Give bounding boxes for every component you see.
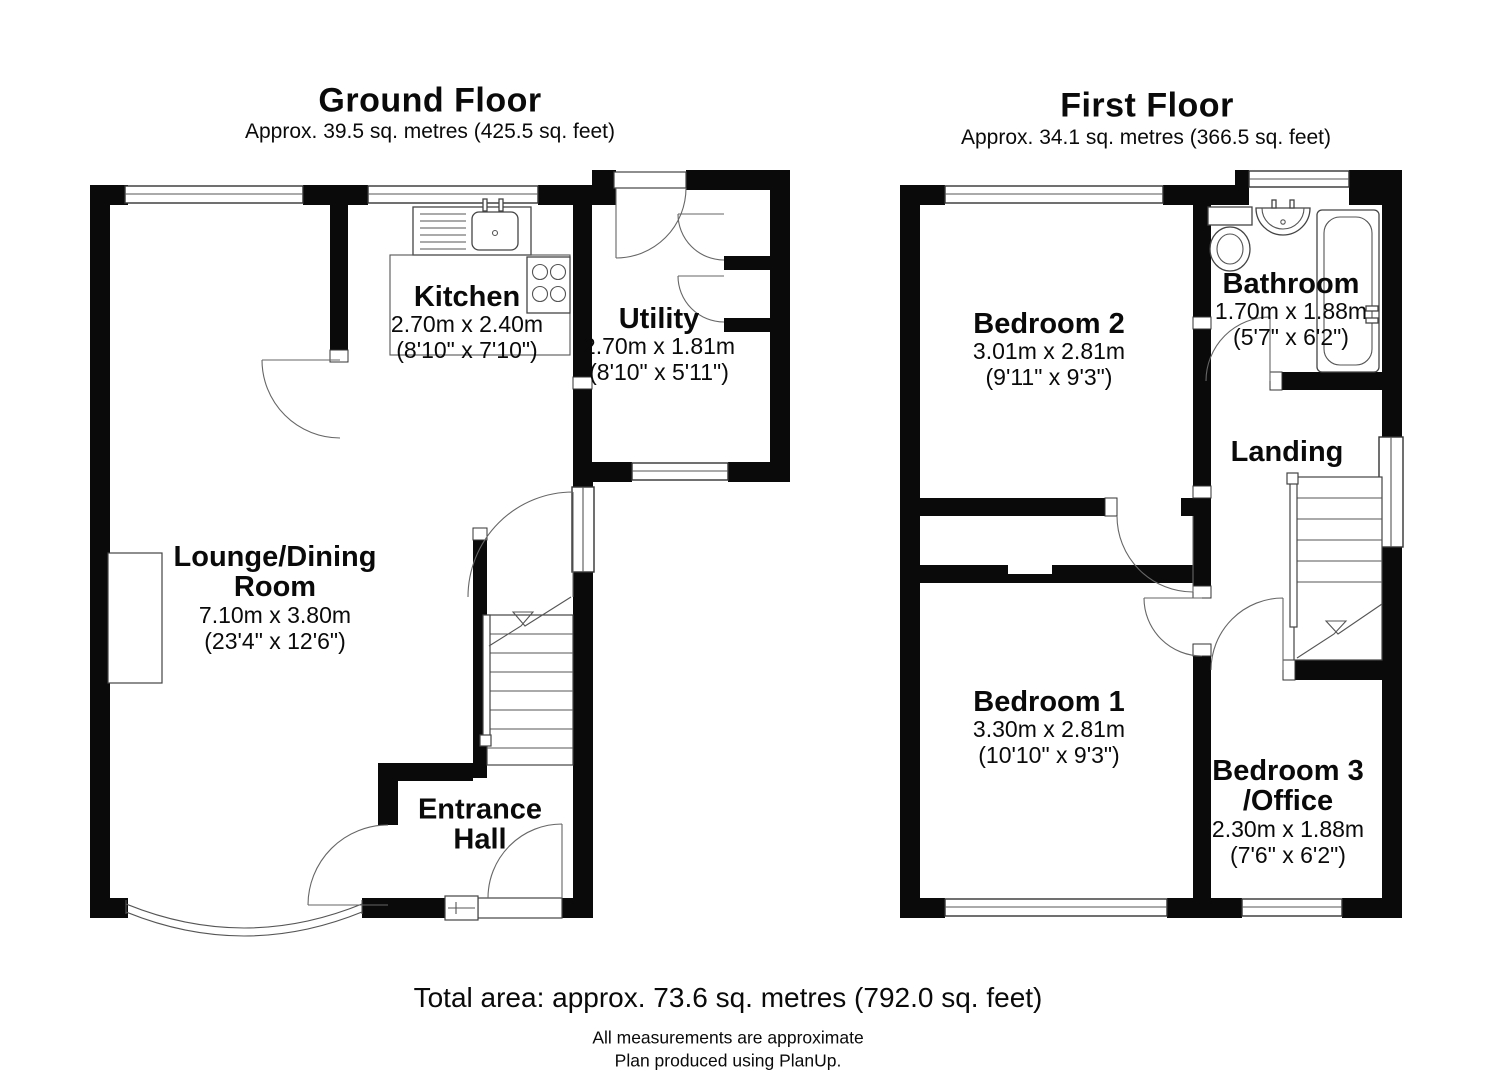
kitchen-sink [413,199,531,255]
ground-floor-area: Approx. 39.5 sq. metres (425.5 sq. feet) [245,120,615,144]
first-floor-area: Approx. 34.1 sq. metres (366.5 sq. feet) [961,126,1331,150]
bathroom-window [1249,171,1349,187]
toilet [1208,207,1252,271]
utility-external-door [614,172,686,258]
lounge-window [125,186,303,203]
bedroom3-window [1242,899,1342,916]
first-floor-title: First Floor [1060,87,1234,126]
lounge-hall-door [308,825,388,905]
ff-stairs [1287,473,1382,660]
bedroom3-door [1211,598,1283,670]
ground-floor-title: Ground Floor [318,82,541,121]
room-label-entrance-hall: Entrance Hall [418,795,542,856]
room-label-bedroom3: Bedroom 3 /Office 2.30m x 1.88m (7'6" x … [1212,756,1364,868]
gf-stairs [480,597,573,765]
measurements-note: All measurements are approximate [592,1028,863,1049]
bedroom1-window [945,899,1167,916]
room-label-bathroom: Bathroom 1.70m x 1.88m (5'7" x 6'2") [1215,269,1367,351]
kitchen-lounge-door [262,360,340,438]
bedroom2-window [945,186,1163,203]
stairs-side-window [572,487,594,572]
room-label-bedroom1: Bedroom 1 3.30m x 2.81m (10'10" x 9'3") [973,687,1125,769]
produced-by-note: Plan produced using PlanUp. [615,1051,842,1072]
room-label-landing: Landing [1231,437,1344,467]
room-label-utility: Utility 2.70m x 1.81m (8'10" x 5'11") [583,304,735,386]
total-area-text: Total area: approx. 73.6 sq. metres (792… [414,982,1043,1014]
floorplan-page: Ground Floor Approx. 39.5 sq. metres (42… [0,0,1485,1080]
basin [1256,200,1310,235]
chimney-breast [108,553,162,683]
utility-window [632,463,728,480]
utility-cupboard-door-1 [678,214,724,260]
room-label-bedroom2: Bedroom 2 3.01m x 2.81m (9'11" x 9'3") [973,309,1125,391]
kitchen-window [368,186,538,203]
room-label-kitchen: Kitchen 2.70m x 2.40m (8'10" x 7'10") [391,282,543,364]
front-door-side-panel [445,896,478,920]
room-label-lounge: Lounge/Dining Room 7.10m x 3.80m (23'4" … [174,542,377,654]
